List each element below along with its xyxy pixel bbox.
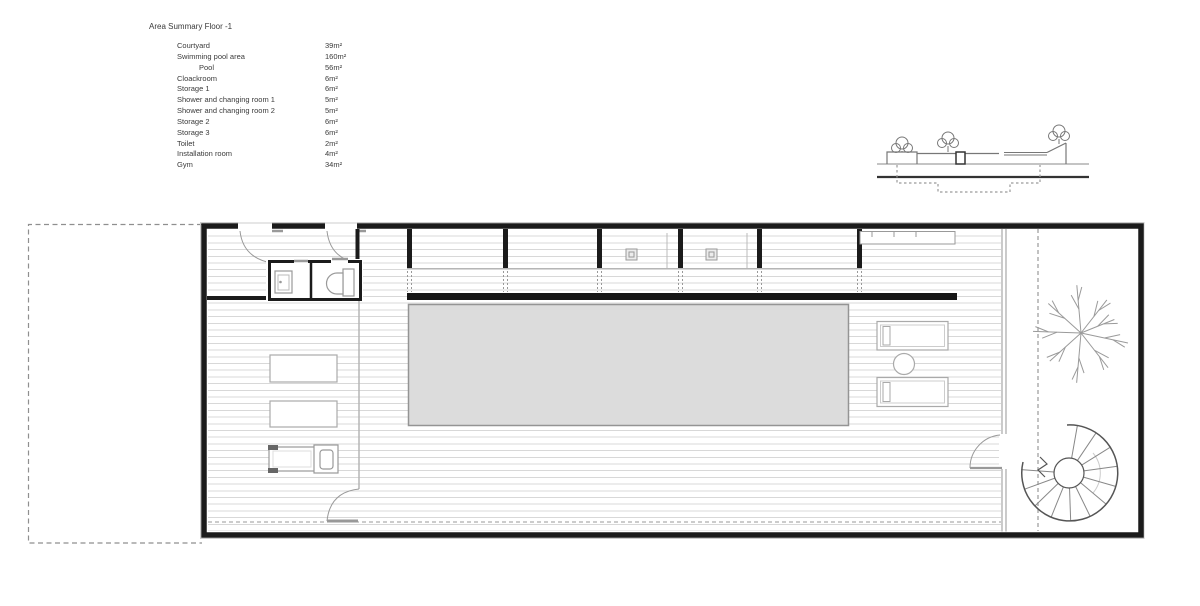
sink-tap (279, 281, 282, 284)
area-value: 2m² (325, 139, 385, 150)
door-opening (238, 221, 272, 230)
area-row: Courtyard39m² (177, 41, 385, 52)
area-label: Storage 1 (177, 84, 325, 95)
area-row: Toilet2m² (177, 139, 385, 150)
area-label: Gym (177, 160, 325, 171)
area-row: Pool56m² (177, 63, 385, 74)
treadmill-icon (268, 445, 338, 473)
section-ramp (1047, 143, 1066, 153)
section-planter (956, 152, 965, 164)
counter-outline (860, 232, 955, 245)
treadmill-roller (268, 445, 278, 450)
door-arc (970, 435, 1000, 468)
stair-break-mark (1038, 457, 1047, 477)
section-drawing (877, 125, 1089, 192)
courtyard-glass-wall (970, 229, 1009, 532)
excavation-dashed-outline (29, 225, 203, 544)
area-value: 6m² (325, 128, 385, 139)
area-label: Cloackroom (177, 74, 325, 85)
stair-center-column (1054, 458, 1084, 488)
area-row: Gym34m² (177, 160, 385, 171)
bench-counter (860, 232, 955, 245)
sunbed-frame (877, 322, 948, 351)
area-row: Swimming pool area160m² (177, 52, 385, 63)
area-value: 6m² (325, 84, 385, 95)
area-value: 34m² (325, 160, 385, 171)
spiral-staircase-icon (1021, 425, 1118, 521)
toilet-cistern (343, 269, 354, 296)
side-table-icon (894, 354, 915, 375)
area-label: Shower and changing room 1 (177, 95, 325, 106)
gym-mat (270, 355, 337, 382)
area-label: Courtyard (177, 41, 325, 52)
area-row: Storage 26m² (177, 117, 385, 128)
area-label: Storage 3 (177, 128, 325, 139)
floor-plan-sheet: Area Summary Floor -1 Courtyard39m² Swim… (0, 0, 1200, 606)
floor-drain-icon (626, 249, 637, 260)
area-label: Swimming pool area (177, 52, 325, 63)
area-row: Cloackroom6m² (177, 74, 385, 85)
area-label: Shower and changing room 2 (177, 106, 325, 117)
sunbed-frame (877, 378, 948, 407)
section-left-wall (887, 152, 917, 164)
area-value: 6m² (325, 74, 385, 85)
area-row: Installation room4m² (177, 149, 385, 160)
door-opening (325, 221, 357, 230)
bush-icon (892, 137, 913, 153)
area-row: Shower and changing room 15m² (177, 95, 385, 106)
floor-plan (29, 221, 1145, 543)
sunbed-icon (877, 322, 948, 351)
area-value: 39m² (325, 41, 385, 52)
area-value: 4m² (325, 149, 385, 160)
roof-edge-dashed-lines (408, 271, 862, 292)
gym-mat (270, 401, 337, 427)
area-row: Storage 16m² (177, 84, 385, 95)
stair-mid-arc (1093, 453, 1100, 493)
area-value: 160m² (325, 52, 385, 63)
toilet-icon (327, 273, 344, 294)
sunbed-icon (877, 378, 948, 407)
door-opening (999, 434, 1009, 469)
tree-icon (1033, 285, 1128, 383)
door-arc (327, 489, 359, 521)
area-row: Storage 36m² (177, 128, 385, 139)
pool-bench (407, 293, 957, 300)
door-arc (240, 231, 272, 263)
treadmill-roller (268, 468, 278, 473)
area-value: 5m² (325, 95, 385, 106)
area-label: Storage 2 (177, 117, 325, 128)
floor-drain-icon (706, 249, 717, 260)
area-row: Shower and changing room 25m² (177, 106, 385, 117)
bathroom (266, 258, 363, 302)
area-value: 5m² (325, 106, 385, 117)
area-summary-title: Area Summary Floor -1 (149, 22, 232, 31)
bush-icon (1049, 125, 1070, 144)
area-label: Installation room (177, 149, 325, 160)
area-summary-list: Courtyard39m² Swimming pool area160m² Po… (177, 41, 385, 171)
swimming-pool (409, 305, 849, 426)
area-label: Pool (177, 63, 325, 74)
bush-icon (938, 132, 959, 152)
area-value: 56m² (325, 63, 385, 74)
area-label: Toilet (177, 139, 325, 150)
area-value: 6m² (325, 117, 385, 128)
basement-dashed-outline (897, 165, 1040, 192)
